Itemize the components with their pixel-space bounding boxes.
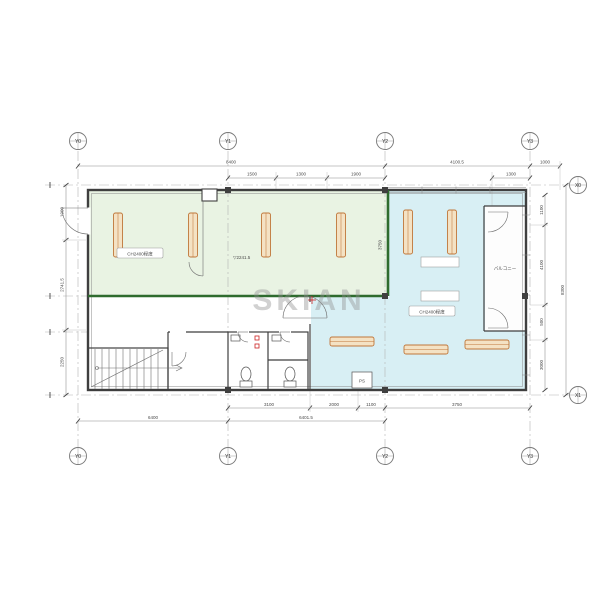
floor-plan-svg: Y0 Y1 Y2 Y3 Y0 Y1 Y2 Y3 bbox=[0, 0, 600, 600]
dim-label: 1000 bbox=[540, 160, 551, 165]
dim-label: 3000 bbox=[539, 359, 544, 370]
dim-label: 6401.5 bbox=[299, 415, 313, 420]
grid-label: Y2 bbox=[382, 139, 388, 145]
grid-label: X0 bbox=[575, 183, 581, 189]
ceiling-height-label: CH2400程度 bbox=[127, 251, 153, 258]
dim-label: 6400 bbox=[148, 415, 159, 420]
dim-label-total: 8300 bbox=[560, 284, 565, 295]
desk bbox=[465, 340, 509, 349]
grid-marker-y1-bottom: Y1 bbox=[220, 448, 237, 465]
grid-marker-x0-right: X0 bbox=[570, 177, 587, 194]
grid-marker-y2-bottom: Y2 bbox=[377, 448, 394, 465]
desk bbox=[404, 345, 448, 354]
desk bbox=[448, 210, 457, 254]
dim-label: 2741.5 bbox=[60, 278, 65, 292]
grid-label: Y3 bbox=[527, 454, 533, 460]
table-white bbox=[421, 257, 459, 267]
grid-marker-x1-right: X1 bbox=[570, 387, 587, 404]
dim-label: 1900 bbox=[351, 172, 362, 177]
dim-label: 4100 bbox=[539, 259, 544, 270]
door-swing bbox=[172, 352, 186, 366]
level-note: ▽2241.5 bbox=[233, 255, 251, 260]
grid-label: Y2 bbox=[382, 454, 388, 460]
grid-label: Y1 bbox=[225, 454, 231, 460]
toilet bbox=[285, 367, 295, 381]
dim-label: 1300 bbox=[506, 172, 517, 177]
dim-label: 2000 bbox=[329, 402, 340, 407]
desk bbox=[330, 337, 374, 346]
grid-label: X1 bbox=[575, 393, 581, 399]
grid-marker-y0-bottom: Y0 bbox=[70, 448, 87, 465]
grid-label: Y3 bbox=[527, 139, 533, 145]
balcony-label: バルコニー bbox=[494, 266, 517, 271]
desk bbox=[189, 213, 198, 257]
grid-marker-y3-bottom: Y3 bbox=[522, 448, 539, 465]
fixture-red bbox=[255, 336, 259, 340]
dim-label: 4100.5 bbox=[450, 160, 464, 165]
grid-marker-y2-top: Y2 bbox=[377, 133, 394, 150]
grid-label: Y1 bbox=[225, 139, 231, 145]
floor-plan-drawing: Y0 Y1 Y2 Y3 Y0 Y1 Y2 Y3 bbox=[0, 0, 600, 600]
grid-marker-y0-top: Y0 bbox=[70, 133, 87, 150]
fixture-red bbox=[255, 344, 259, 348]
sink bbox=[272, 335, 281, 341]
grid-label: Y0 bbox=[75, 139, 81, 145]
dim-label: 2250 bbox=[60, 356, 65, 367]
dim-label: 3100 bbox=[264, 402, 275, 407]
desk bbox=[404, 210, 413, 254]
dim-label: 8400 bbox=[226, 160, 237, 165]
ps-label: PS bbox=[359, 379, 365, 384]
dim-label-interior: 3750 bbox=[378, 239, 383, 250]
grid-label: Y0 bbox=[75, 454, 81, 460]
ceiling-height-label: CH2400程度 bbox=[419, 309, 445, 316]
dim-label: 500 bbox=[539, 318, 544, 326]
desk bbox=[337, 213, 346, 257]
dim-label: 3750 bbox=[452, 402, 463, 407]
watermark: SKIAN bbox=[252, 284, 365, 317]
door-swing bbox=[280, 332, 290, 342]
grid-marker-y3-top: Y3 bbox=[522, 133, 539, 150]
table-white bbox=[421, 291, 459, 301]
wall-notch bbox=[202, 189, 217, 201]
dim-label: 1500 bbox=[247, 172, 258, 177]
dim-label: 1100 bbox=[366, 402, 376, 407]
stairs bbox=[88, 348, 182, 390]
dim-label: 1300 bbox=[296, 172, 307, 177]
toilet bbox=[241, 367, 251, 381]
dim-label: 1100 bbox=[539, 205, 544, 215]
toilet-tank bbox=[284, 381, 296, 387]
desk bbox=[262, 213, 271, 257]
toilet-tank bbox=[240, 381, 252, 387]
grid-marker-y1-top: Y1 bbox=[220, 133, 237, 150]
